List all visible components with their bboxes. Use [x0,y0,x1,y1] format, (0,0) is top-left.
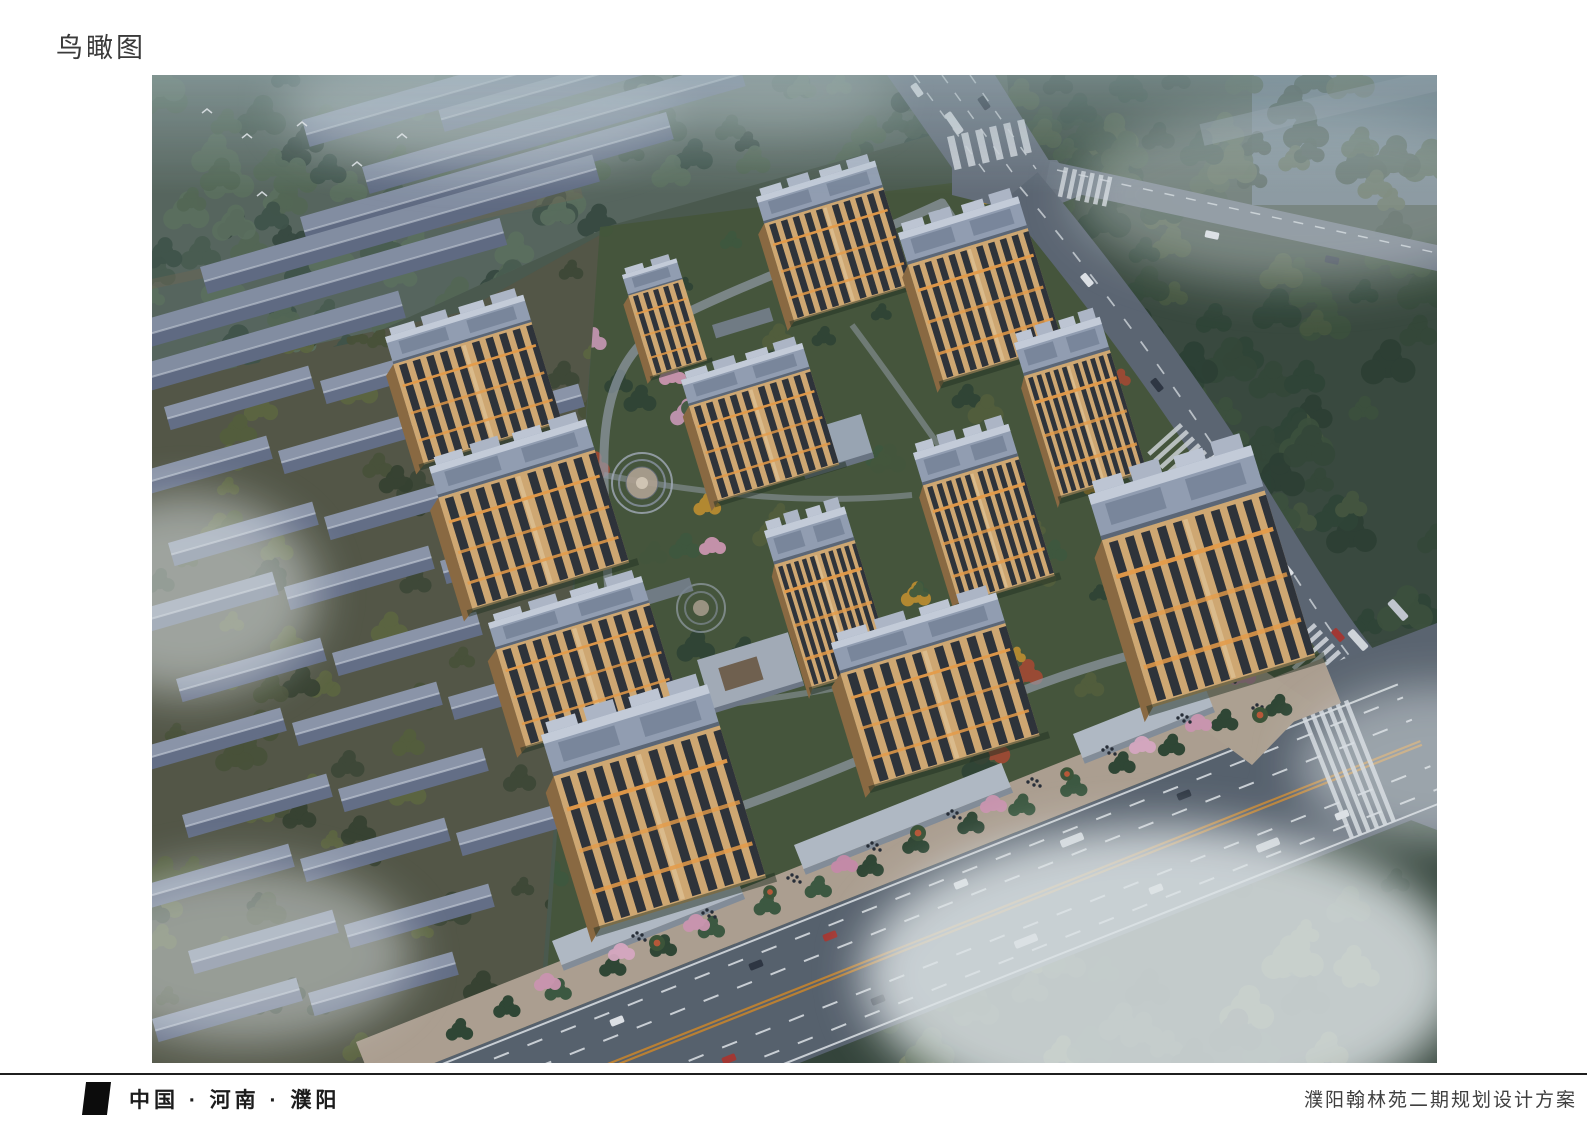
page-title: 鸟瞰图 [56,26,146,65]
footer-black-bar [82,1082,111,1115]
dusk-tint [152,75,1437,1063]
footer-location: 中国 · 河南 · 濮阳 [129,1084,340,1114]
slide-page: 鸟瞰图 [0,0,1587,1122]
footer: 中国 · 河南 · 濮阳 濮阳翰林苑二期规划设计方案 [0,1075,1587,1122]
footer-project-title: 濮阳翰林苑二期规划设计方案 [1304,1085,1577,1112]
aerial-render-image [152,75,1437,1063]
